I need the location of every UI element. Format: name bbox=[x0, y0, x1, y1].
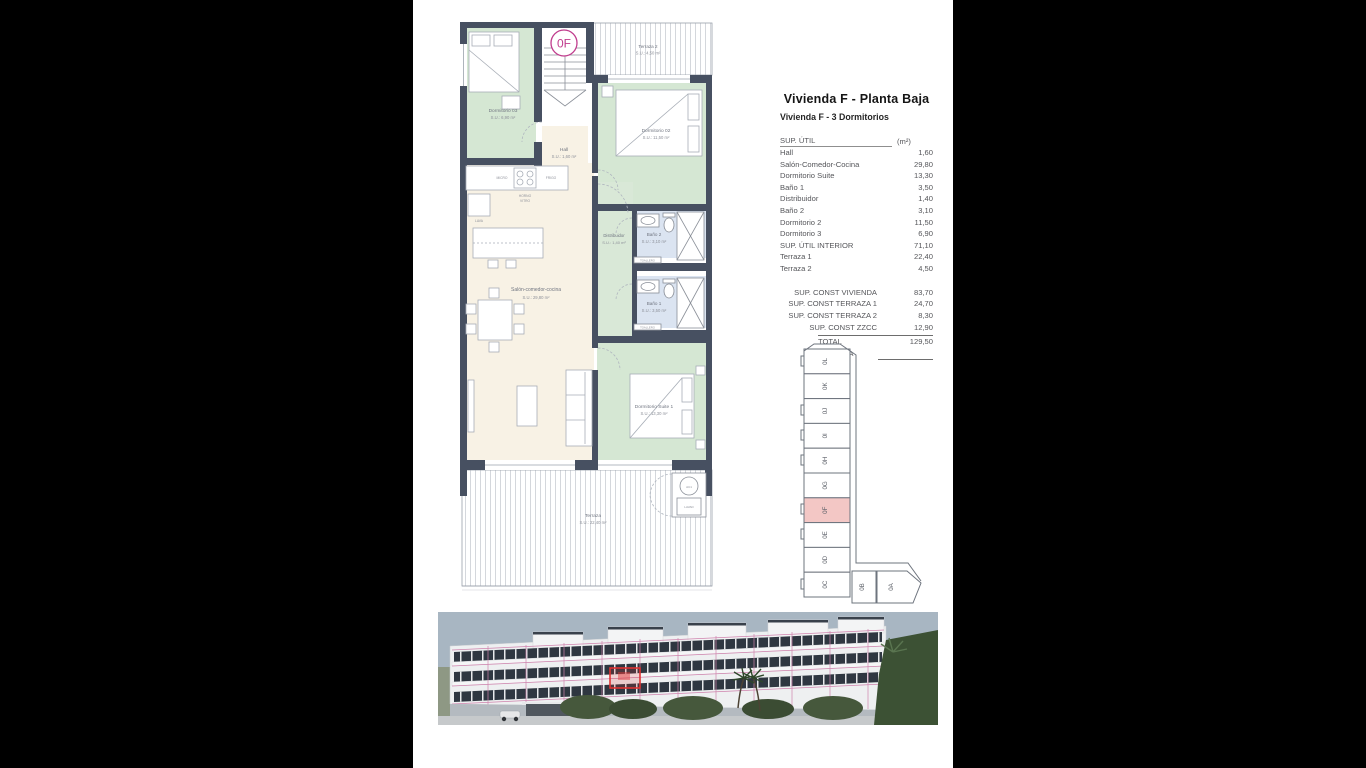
unit-label: 0H bbox=[822, 457, 829, 465]
header-label: SUP. ÚTIL bbox=[780, 135, 892, 147]
unit-badge: 0F bbox=[551, 30, 577, 56]
unit-badge-label: 0F bbox=[557, 37, 571, 51]
area-table: SUP. ÚTIL (m²) Hall1,60 Salón-Comedor-Co… bbox=[780, 135, 933, 360]
terraza-area: S.U.: 22,40 m² bbox=[580, 520, 608, 525]
bano2-name: Baño 2 bbox=[647, 232, 662, 237]
terraza2-name: Terraza 2 bbox=[638, 44, 658, 49]
lava-label: LAVA bbox=[475, 219, 484, 223]
unit-label: 0E bbox=[822, 531, 829, 539]
bano1-name: Baño 1 bbox=[647, 301, 662, 306]
summary-row: SUP. CONST ZZCC12,90 bbox=[780, 322, 933, 334]
unit-label: 0J bbox=[822, 408, 829, 415]
page-subtitle: Vivienda F - 3 Dormitorios bbox=[780, 112, 933, 122]
area-summary-panel: Vivienda F - Planta Baja Vivienda F - 3 … bbox=[780, 92, 933, 360]
unit-label: 0L bbox=[822, 357, 829, 364]
table-row: Salón-Comedor-Cocina29,80 bbox=[780, 159, 933, 171]
toallero1-label: TOALLERO bbox=[640, 259, 656, 263]
hall-area: S.U.: 1,60 m² bbox=[552, 154, 577, 159]
salon-area: S.U.: 29,80 m² bbox=[523, 295, 551, 300]
table-row: SUP. ÚTIL INTERIOR71,10 bbox=[780, 240, 933, 252]
floor-plan-drawing: 0F bbox=[458, 18, 718, 596]
table-row: Dormitorio 36,90 bbox=[780, 228, 933, 240]
frigo-label: FRIGO bbox=[546, 176, 557, 180]
hall-name: Hall bbox=[560, 147, 568, 153]
floor-plan: 0F bbox=[458, 18, 718, 596]
screenshot-stage: 0F bbox=[0, 0, 1366, 768]
terraza-name: Terraza bbox=[585, 513, 601, 519]
unit-label: 0G bbox=[822, 481, 829, 489]
unit-label: 0I bbox=[822, 433, 829, 438]
unit-label: 0D bbox=[822, 555, 829, 563]
dorm3-name: Dormitorio 03 bbox=[489, 108, 518, 114]
summary-row: SUP. CONST TERRAZA 28,30 bbox=[780, 310, 933, 322]
table-row: Terraza 24,50 bbox=[780, 263, 933, 275]
suite-area: S.U.: 13,30 m² bbox=[641, 411, 669, 416]
dorm2-area: S.U.: 11,50 m² bbox=[643, 135, 670, 140]
salon-name: Salón-comedor-cocina bbox=[511, 287, 561, 293]
unit-label-highlighted: 0F bbox=[822, 506, 829, 513]
table-row: Hall1,60 bbox=[780, 147, 933, 159]
ac1-label: AC1 bbox=[686, 485, 692, 489]
area-table-header: SUP. ÚTIL (m²) bbox=[780, 135, 933, 147]
unit-location-diagram: 0L 0K 0J 0I 0H 0G 0F 0E 0D 0C 0B 0A bbox=[800, 343, 938, 611]
distribuidor-area: S.U.: 1,40 m² bbox=[602, 240, 626, 245]
building-render bbox=[438, 612, 938, 725]
table-row: Baño 13,50 bbox=[780, 182, 933, 194]
suite-name: Dormitorio Suite 1 bbox=[635, 404, 674, 410]
furniture-dorm2 bbox=[602, 86, 702, 156]
building-render-drawing bbox=[438, 612, 938, 725]
document-page: 0F bbox=[413, 0, 953, 768]
vitro-label: VITRO bbox=[520, 199, 531, 203]
table-row: Dormitorio 211,50 bbox=[780, 217, 933, 229]
dorm3-area: S.U.: 6,90 m² bbox=[491, 115, 516, 120]
bano2-area: S.U.: 3,10 m² bbox=[642, 239, 667, 244]
summary-row: SUP. CONST VIVIENDA83,70 bbox=[780, 287, 933, 299]
unit-label: 0A bbox=[888, 582, 895, 590]
header-unit: (m²) bbox=[897, 136, 911, 147]
distribuidor-name: Distribuidor bbox=[603, 233, 625, 238]
location-strip-drawing: 0L 0K 0J 0I 0H 0G 0F 0E 0D 0C 0B 0A bbox=[800, 343, 938, 611]
page-title: Vivienda F - Planta Baja bbox=[780, 92, 933, 106]
unit-label: 0K bbox=[822, 382, 829, 390]
dorm2-name: Dormitorio 02 bbox=[642, 128, 671, 134]
highlighted-unit-fill bbox=[618, 672, 630, 680]
micro-label: MICRO bbox=[497, 176, 508, 180]
terraza2-area: S.U.: 4,50 m² bbox=[636, 51, 661, 56]
table-row: Baño 23,10 bbox=[780, 205, 933, 217]
toallero2-label: TOALLERO bbox=[640, 326, 656, 330]
unit-label: 0B bbox=[859, 583, 866, 591]
horno-label: HORNO bbox=[519, 194, 532, 198]
table-row: Distribuidor1,40 bbox=[780, 193, 933, 205]
table-row: Dormitorio Suite13,30 bbox=[780, 170, 933, 182]
lavad-label: LAVAD bbox=[684, 505, 694, 509]
terrace-equipment bbox=[672, 473, 706, 517]
table-row: Terraza 122,40 bbox=[780, 251, 933, 263]
bano1-area: S.U.: 3,50 m² bbox=[642, 308, 667, 313]
summary-row: SUP. CONST TERRAZA 124,70 bbox=[780, 298, 933, 310]
unit-label: 0C bbox=[822, 580, 829, 588]
